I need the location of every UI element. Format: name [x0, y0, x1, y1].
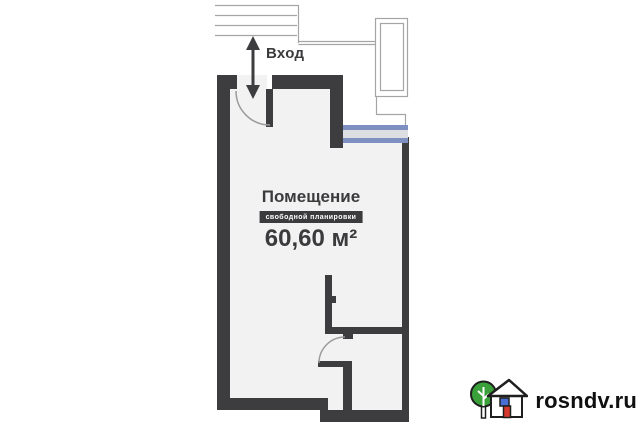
watermark-site-text: rosndv.ru — [535, 386, 637, 412]
room-layout-badge: свободной планировки — [260, 211, 363, 223]
bathroom-door-leaf — [318, 361, 345, 367]
floor-plan-image: Вход Помещение свободной планировки 60,6… — [0, 0, 640, 426]
window — [343, 125, 408, 143]
house-and-tree-icon — [470, 377, 528, 422]
interior-partition — [325, 275, 332, 334]
room-title: Помещение — [260, 188, 363, 206]
entrance-door-leaf — [266, 89, 273, 127]
room-area-value: 60,60 м² — [260, 226, 363, 251]
room-info: Помещение свободной планировки 60,60 м² — [260, 188, 363, 251]
watermark: rosndv.ru — [470, 376, 637, 422]
entrance-label: Вход — [266, 45, 304, 62]
